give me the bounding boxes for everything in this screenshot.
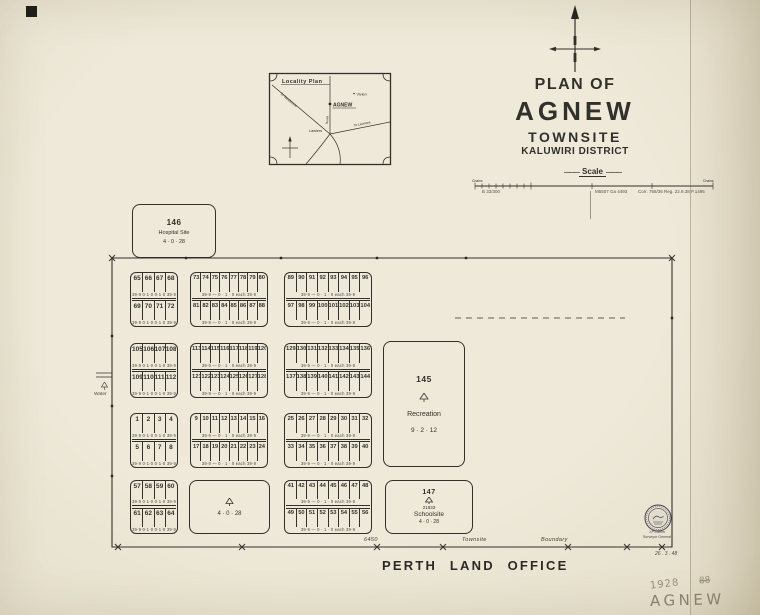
lot-93: 93 [329, 273, 340, 292]
lot-99: 99 [307, 301, 318, 320]
block-half: 567839·9 0·1·0 0·1·0 39·9 [132, 441, 176, 467]
lot-132: 132 [318, 344, 329, 363]
lot-125: 125 [230, 372, 239, 391]
lot-54: 54 [339, 509, 350, 527]
lot-113: 113 [192, 344, 201, 363]
lot-23: 23 [248, 442, 257, 461]
lot-85: 85 [230, 301, 239, 320]
lot-area-note: 39·9 — 0 · 1 · 0 each 39·9 [286, 363, 370, 369]
lot-21: 21 [230, 442, 239, 461]
lot-65: 65 [132, 273, 143, 292]
boundary-word-boundary: Boundary [541, 537, 568, 543]
seal-imprint-line2: Surveyor General [638, 535, 676, 540]
lot-80: 80 [258, 273, 266, 292]
lot-104: 104 [360, 301, 370, 320]
lot-14: 14 [239, 414, 248, 433]
block-half: 333435363738394039·9 — 0 · 1 · 0 each 39… [286, 441, 370, 467]
block-half: 737475767778798039·9 — 0 · 1 · 0 each 39… [192, 273, 266, 299]
inset-agnew: AGNEW [333, 103, 352, 109]
locality-plan-inset: Locality Plan AGNEW Vivien Lawlers To Le… [268, 72, 392, 166]
lot-128: 128 [258, 372, 266, 391]
lot-109: 109 [132, 372, 143, 391]
tree-icon [100, 382, 109, 390]
lot-2: 2 [143, 414, 154, 433]
lot-136: 136 [360, 344, 370, 363]
lot-130: 130 [297, 344, 308, 363]
lot-75: 75 [211, 273, 220, 292]
lot-6: 6 [143, 442, 154, 461]
title-name: AGNEW [455, 97, 695, 127]
lot-12: 12 [220, 414, 229, 433]
lot-area-note: 39·9 — 0 · 1 · 0 each 39·9 [286, 499, 370, 505]
lot-block-105-112: 10510610710839·9 0·1·0 0·1·0 39·91091101… [130, 343, 178, 398]
block-half: 414243444546474839·9 — 0 · 1 · 0 each 39… [286, 481, 370, 506]
lot-block-41-56: 414243444546474839·9 — 0 · 1 · 0 each 39… [284, 480, 372, 534]
lot-53: 53 [329, 509, 340, 527]
pencil-year: 1928 [649, 577, 680, 592]
block-half: 11311411511611711811912039·9 — 0 · 1 · 0… [192, 344, 266, 370]
lot-57: 57 [132, 481, 143, 499]
lot-127: 127 [248, 372, 257, 391]
inset-title: Locality Plan [282, 79, 323, 85]
lot-area-note: 39·9 — 0 · 1 · 0 each 39·9 [286, 433, 370, 439]
lot-110: 110 [143, 372, 154, 391]
lot-49: 49 [286, 509, 297, 527]
lot-105: 105 [132, 344, 143, 363]
lot-119: 119 [248, 344, 257, 363]
title-block: PLAN OF AGNEW TOWNSITE KALUWIRI DISTRICT [455, 76, 695, 158]
parcel-area: 4 · 0 · 28 [419, 519, 439, 525]
lot-48: 48 [360, 481, 370, 499]
lot-area-note: 39·9 — 0 · 1 · 0 each 39·9 [286, 391, 370, 397]
block-half: 6566676839·9 0·1·0 0·1·0 39·9 [132, 273, 176, 299]
boundary-length: 6450 [364, 537, 378, 543]
tree-icon [224, 498, 235, 506]
lot-76: 76 [220, 273, 229, 292]
lot-area-note: 39·9 — 0 · 1 · 0 each 39·9 [192, 292, 266, 298]
scale-chains-left: Chains [472, 179, 483, 183]
lot-area-note: 39·9 — 0 · 1 · 0 each 39·9 [286, 320, 370, 326]
parcel-lot-number: 145 [416, 374, 432, 384]
lot-55: 55 [350, 509, 361, 527]
scale-title: Scale [470, 167, 715, 176]
lot-area-note: 39·9 0·1·0 0·1·0 39·9 [132, 527, 176, 533]
lot-40: 40 [360, 442, 370, 461]
tree-icon [418, 393, 430, 402]
lot-78: 78 [239, 273, 248, 292]
lot-62: 62 [143, 509, 154, 527]
lot-45: 45 [329, 481, 340, 499]
page-edge [690, 0, 760, 615]
lot-83: 83 [211, 301, 220, 320]
lot-area-note: 39·9 — 0 · 1 · 0 each 39·9 [192, 391, 266, 397]
parcel-lot-number: 147 [422, 489, 435, 496]
lot-35: 35 [307, 442, 318, 461]
block-half: 818283848586878839·9 — 0 · 1 · 0 each 39… [192, 300, 266, 326]
boundary-word-townsite: Townsite [462, 537, 487, 543]
lot-121: 121 [192, 372, 201, 391]
lot-block-25-40: 252627282930313239·9 — 0 · 1 · 0 each 39… [284, 413, 372, 468]
lot-37: 37 [329, 442, 340, 461]
lot-block-57-64: 5758596039·9 0·1·0 0·1·0 39·96162636439·… [130, 480, 178, 534]
lot-101: 101 [329, 301, 340, 320]
parcel-area: 4 · 0 · 28 [217, 511, 241, 517]
lot-area-note: 39·9 0·1·0 0·1·0 39·9 [132, 391, 176, 397]
lot-10: 10 [201, 414, 210, 433]
lot-61: 61 [132, 509, 143, 527]
parcel-name: Hospital Site [159, 230, 190, 236]
lot-124: 124 [220, 372, 229, 391]
lot-29: 29 [329, 414, 340, 433]
lot-block-65-72: 6566676839·9 0·1·0 0·1·0 39·96970717239·… [130, 272, 178, 327]
parcel-reserve: 4 · 0 · 28 [189, 480, 270, 534]
lot-71: 71 [155, 301, 166, 320]
lot-142: 142 [339, 372, 350, 391]
parcel-schoolsite: 147 21833 Schoolsite 4 · 0 · 28 [385, 480, 473, 534]
pencil-name: AGNEW [650, 590, 725, 610]
lot-30: 30 [339, 414, 350, 433]
block-half: 91011121314151639·9 — 0 · 1 · 0 each 39·… [192, 414, 266, 440]
lot-64: 64 [166, 509, 176, 527]
lot-135: 135 [350, 344, 361, 363]
block-half: 12112212312412512612712839·9 — 0 · 1 · 0… [192, 371, 266, 397]
inset-lawlers: Lawlers [309, 129, 322, 133]
lot-90: 90 [297, 273, 308, 292]
lot-122: 122 [201, 372, 210, 391]
lot-area-note: 39·9 — 0 · 1 · 0 each 39·9 [192, 461, 266, 467]
lot-111: 111 [155, 372, 166, 391]
lot-22: 22 [239, 442, 248, 461]
lot-139: 139 [307, 372, 318, 391]
lot-95: 95 [350, 273, 361, 292]
lot-72: 72 [166, 301, 176, 320]
lot-area-note: 39·9 0·1·0 0·1·0 39·9 [132, 363, 176, 369]
lot-3: 3 [155, 414, 166, 433]
lot-91: 91 [307, 273, 318, 292]
seal-imprint: J.P.Camm Surveyor General [638, 530, 676, 539]
lot-32: 32 [360, 414, 370, 433]
lot-92: 92 [318, 273, 329, 292]
lot-50: 50 [297, 509, 308, 527]
lot-46: 46 [339, 481, 350, 499]
block-half: 899091929394959639·9 — 0 · 1 · 0 each 39… [286, 273, 370, 299]
scale-chains-right: Chains [703, 179, 714, 183]
survey-date: 26 . 3 . 48 [655, 551, 677, 557]
lot-area-note: 39·9 — 0 · 1 · 0 each 39·9 [192, 363, 266, 369]
tree-icon [424, 497, 434, 504]
lot-86: 86 [239, 301, 248, 320]
lot-block-113-128: 11311411511611711811912039·9 — 0 · 1 · 0… [190, 343, 268, 398]
lot-area-note: 39·9 — 0 · 1 · 0 each 39·9 [192, 320, 266, 326]
lot-102: 102 [339, 301, 350, 320]
lot-60: 60 [166, 481, 176, 499]
inset-road-label: Road [325, 116, 329, 124]
lot-4: 4 [166, 414, 176, 433]
lot-88: 88 [258, 301, 266, 320]
lot-block-89-104: 899091929394959639·9 — 0 · 1 · 0 each 39… [284, 272, 372, 327]
lot-81: 81 [192, 301, 201, 320]
lot-5: 5 [132, 442, 143, 461]
block-half: 6970717239·9 0·1·0 0·1·0 39·9 [132, 300, 176, 326]
lot-38: 38 [339, 442, 350, 461]
inset-to-sandstone: To Sandstone [279, 92, 298, 108]
lot-39: 39 [350, 442, 361, 461]
block-half: 12913013113213313413513639·9 — 0 · 1 · 0… [286, 344, 370, 370]
lot-107: 107 [155, 344, 166, 363]
registration-mark [26, 6, 37, 17]
lot-51: 51 [307, 509, 318, 527]
lot-141: 141 [329, 372, 340, 391]
lot-area-note: 39·9 — 0 · 1 · 0 each 39·9 [286, 292, 370, 298]
lot-108: 108 [166, 344, 176, 363]
lot-16: 16 [258, 414, 266, 433]
lot-96: 96 [360, 273, 370, 292]
lot-131: 131 [307, 344, 318, 363]
lot-area-note: 39·9 0·1·0 0·1·0 39·9 [132, 292, 176, 298]
block-half: 10510610710839·9 0·1·0 0·1·0 39·9 [132, 344, 176, 370]
lot-82: 82 [201, 301, 210, 320]
lot-7: 7 [155, 442, 166, 461]
lot-84: 84 [220, 301, 229, 320]
lot-129: 129 [286, 344, 297, 363]
lot-98: 98 [297, 301, 308, 320]
lot-17: 17 [192, 442, 201, 461]
lot-42: 42 [297, 481, 308, 499]
lot-116: 116 [220, 344, 229, 363]
lot-27: 27 [307, 414, 318, 433]
lot-33: 33 [286, 442, 297, 461]
lot-89: 89 [286, 273, 297, 292]
lot-133: 133 [329, 344, 340, 363]
lot-77: 77 [230, 273, 239, 292]
parcel-hospital-site: 146 Hospital Site 4 · 0 · 28 [132, 204, 216, 258]
lot-9: 9 [192, 414, 201, 433]
lot-79: 79 [248, 273, 257, 292]
lot-block-73-88: 737475767778798039·9 — 0 · 1 · 0 each 39… [190, 272, 268, 327]
north-arrow-icon [547, 2, 603, 76]
block-half: 5758596039·9 0·1·0 0·1·0 39·9 [132, 481, 176, 506]
issuing-office: PERTH LAND OFFICE [382, 558, 568, 573]
lot-115: 115 [211, 344, 220, 363]
block-half: 97989910010110210310439·9 — 0 · 1 · 0 ea… [286, 300, 370, 326]
lot-36: 36 [318, 442, 329, 461]
water-label: Water [94, 392, 107, 397]
title-plan-of: PLAN OF [455, 76, 695, 94]
lot-34: 34 [297, 442, 308, 461]
lot-43: 43 [307, 481, 318, 499]
lot-140: 140 [318, 372, 329, 391]
lot-47: 47 [350, 481, 361, 499]
parcel-area: 4 · 0 · 28 [163, 239, 185, 245]
lot-69: 69 [132, 301, 143, 320]
inset-vivien: Vivien [357, 93, 367, 97]
lot-8: 8 [166, 442, 176, 461]
lot-112: 112 [166, 372, 176, 391]
inset-compass-icon [282, 136, 298, 158]
lot-26: 26 [297, 414, 308, 433]
lot-44: 44 [318, 481, 329, 499]
block-half: 495051525354555639·9 — 0 · 1 · 0 each 39… [286, 508, 370, 533]
lot-68: 68 [166, 273, 176, 292]
lot-94: 94 [339, 273, 350, 292]
lot-144: 144 [360, 372, 370, 391]
block-half: 6162636439·9 0·1·0 0·1·0 39·9 [132, 508, 176, 533]
lot-11: 11 [211, 414, 220, 433]
lot-97: 97 [286, 301, 297, 320]
lot-118: 118 [239, 344, 248, 363]
block-half: 10911011111239·9 0·1·0 0·1·0 39·9 [132, 371, 176, 397]
lot-15: 15 [248, 414, 257, 433]
title-district: KALUWIRI DISTRICT [455, 146, 695, 158]
lot-25: 25 [286, 414, 297, 433]
parcel-recreation: 145 Recreation 9 · 2 · 12 [383, 341, 465, 467]
lot-67: 67 [155, 273, 166, 292]
lot-area-note: 39·9 — 0 · 1 · 0 each 39·9 [286, 527, 370, 533]
lot-66: 66 [143, 273, 154, 292]
lot-100: 100 [318, 301, 329, 320]
lot-143: 143 [350, 372, 361, 391]
lot-block-9-24: 91011121314151639·9 — 0 · 1 · 0 each 39·… [190, 413, 268, 468]
lot-block-129-144: 12913013113213313413513639·9 — 0 · 1 · 0… [284, 343, 372, 398]
lot-1: 1 [132, 414, 143, 433]
lot-18: 18 [201, 442, 210, 461]
lot-13: 13 [230, 414, 239, 433]
lands-department-seal [643, 503, 673, 533]
lot-120: 120 [258, 344, 266, 363]
lot-137: 137 [286, 372, 297, 391]
lot-area-note: 39·9 — 0 · 1 · 0 each 39·9 [286, 461, 370, 467]
lot-area-note: 39·9 0·1·0 0·1·0 39·9 [132, 320, 176, 326]
lot-area-note: 39·9 0·1·0 0·1·0 39·9 [132, 461, 176, 467]
title-townsite: TOWNSITE [455, 129, 695, 145]
lot-area-note: 39·9 0·1·0 0·1·0 39·9 [132, 499, 176, 505]
lot-19: 19 [211, 442, 220, 461]
lot-63: 63 [155, 509, 166, 527]
lot-20: 20 [220, 442, 229, 461]
lot-138: 138 [297, 372, 308, 391]
lot-56: 56 [360, 509, 370, 527]
lot-134: 134 [339, 344, 350, 363]
lot-31: 31 [350, 414, 361, 433]
lot-87: 87 [248, 301, 257, 320]
lot-24: 24 [258, 442, 266, 461]
lot-59: 59 [155, 481, 166, 499]
pencil-crossed-out: 88 [699, 576, 711, 587]
parcel-name: Schoolsite [414, 511, 444, 518]
lot-126: 126 [239, 372, 248, 391]
lot-117: 117 [230, 344, 239, 363]
map-sheet: Locality Plan AGNEW Vivien Lawlers To Le… [0, 0, 760, 615]
lot-103: 103 [350, 301, 361, 320]
parcel-area: 9 · 2 · 12 [411, 427, 437, 434]
block-half: 123439·9 0·1·0 0·1·0 39·9 [132, 414, 176, 440]
lot-28: 28 [318, 414, 329, 433]
lot-41: 41 [286, 481, 297, 499]
lot-area-note: 39·9 0·1·0 0·1·0 39·9 [132, 433, 176, 439]
lot-block-1-8: 123439·9 0·1·0 0·1·0 39·9567839·9 0·1·0 … [130, 413, 178, 468]
parcel-name: Recreation [407, 411, 441, 418]
lot-52: 52 [318, 509, 329, 527]
parcel-lot-number: 146 [167, 218, 182, 227]
lot-73: 73 [192, 273, 201, 292]
lot-area-note: 39·9 — 0 · 1 · 0 each 39·9 [192, 433, 266, 439]
block-half: 13713813914014114214314439·9 — 0 · 1 · 0… [286, 371, 370, 397]
lot-114: 114 [201, 344, 210, 363]
lot-106: 106 [143, 344, 154, 363]
lot-58: 58 [143, 481, 154, 499]
lot-74: 74 [201, 273, 210, 292]
parcel-reserve-number: 21833 [423, 505, 436, 510]
lot-123: 123 [211, 372, 220, 391]
block-half: 252627282930313239·9 — 0 · 1 · 0 each 39… [286, 414, 370, 440]
block-half: 171819202122232439·9 — 0 · 1 · 0 each 39… [192, 441, 266, 467]
lot-70: 70 [143, 301, 154, 320]
